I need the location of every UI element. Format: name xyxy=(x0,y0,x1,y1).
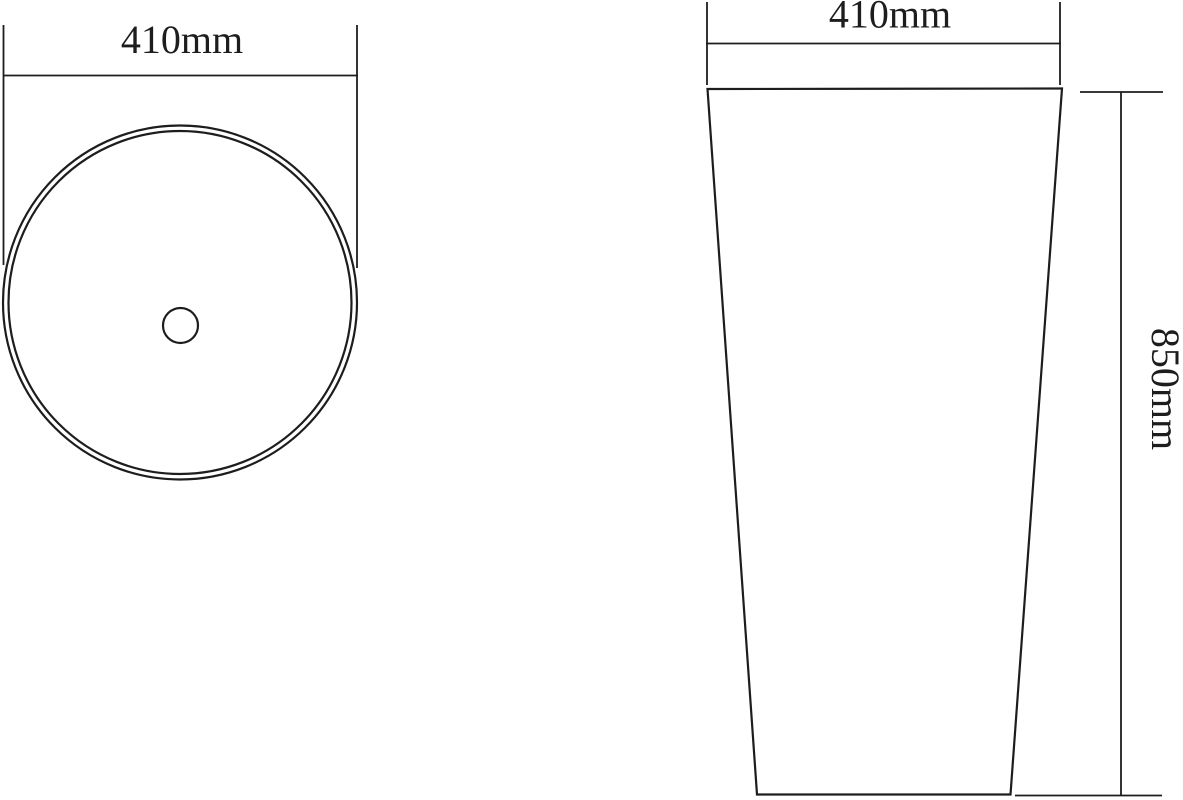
top-view: 410mm xyxy=(3,17,358,480)
basin-outer-rim-circle xyxy=(3,126,357,480)
top-view-diameter-label: 410mm xyxy=(121,17,243,62)
pedestal-body-outline xyxy=(708,89,1063,795)
front-view-width-label: 410mm xyxy=(829,0,951,37)
basin-inner-rim-circle xyxy=(9,131,352,474)
front-view: 410mm 850mm xyxy=(706,0,1183,796)
drawing-canvas: 410mm 410mm 850mm xyxy=(0,0,1183,800)
front-view-height-label: 850mm xyxy=(1143,328,1183,450)
technical-drawing: 410mm 410mm 850mm xyxy=(0,0,1183,800)
drain-hole-circle xyxy=(163,308,198,343)
